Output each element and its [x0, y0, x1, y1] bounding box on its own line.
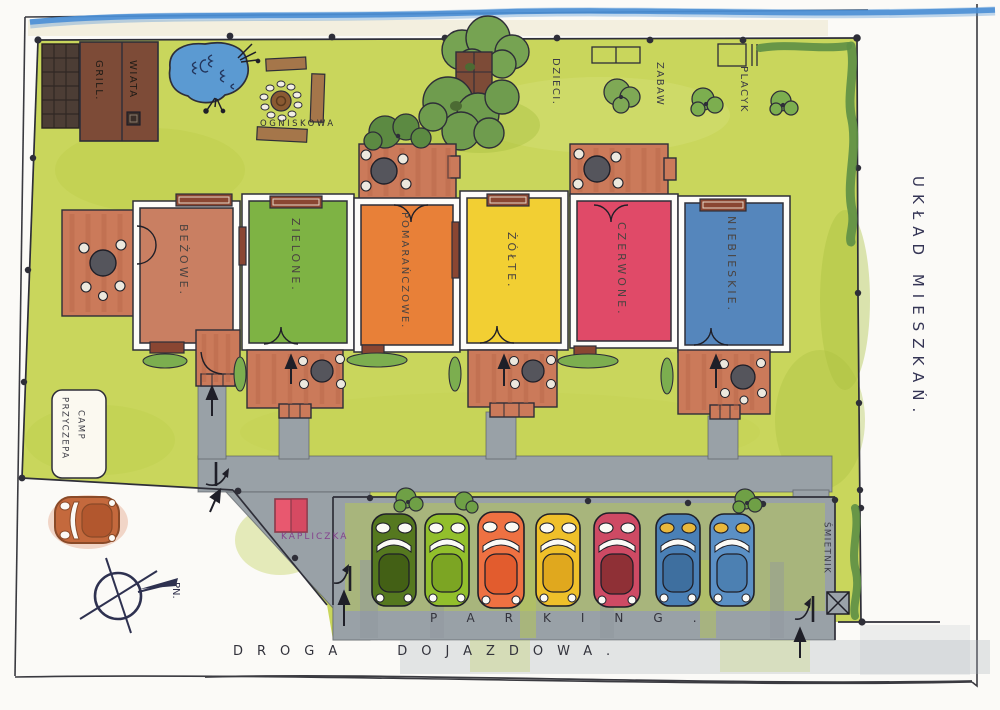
playground-label-placyk: PLACYK [738, 66, 748, 142]
house-label-czerwone: CZERWONE. [616, 222, 627, 340]
house-label-niebieskie: NIEBIESKIE. [726, 216, 737, 346]
camp-label-line2: CAMP [76, 410, 85, 460]
car-dark-green [372, 514, 416, 606]
playground-label-dzieci: DZIECI. [550, 58, 560, 136]
car-yellow [536, 514, 580, 606]
street-car [48, 495, 128, 549]
top-margin-wash [28, 20, 828, 36]
trash-bin [827, 592, 849, 614]
ogniskowa-label: OGNISKOWA [260, 120, 336, 129]
map-title: UKŁAD MIESZKAŃ. [910, 176, 925, 461]
house-label-zolte: ŻÓŁTE. [506, 232, 517, 332]
site-plan-map: GRILL. WIATA OGNISKOWA DZIECI. ZABAW PLA… [0, 0, 1000, 710]
playground-label-zabaw: ZABAW [654, 62, 664, 128]
parking-label: PARKING. [430, 612, 727, 624]
car-light-green [425, 514, 469, 606]
map-drawing [0, 0, 1000, 710]
camp-label-line1: PRZYCZEPA [60, 397, 69, 475]
grill-label: GRILL. [93, 60, 103, 145]
road-label-word2: DOJAZDOWA. [397, 644, 624, 659]
house-label-bezowe: BEŻOWE. [178, 224, 189, 334]
car-blue-1 [656, 514, 700, 606]
house-label-zielone: ZIELONE. [290, 218, 301, 338]
road-label: DROGADOJAZDOWA. [233, 645, 624, 658]
wiata-label: WIATA [127, 60, 137, 132]
compass-north-label: PN. [170, 582, 180, 616]
parked-cars [372, 512, 754, 608]
kapliczka-label: KAPLICZKA [281, 533, 348, 542]
house-label-pomaranczowe: POMARAŃCZOWE. [399, 212, 409, 344]
road-label-word1: DROGA [233, 644, 351, 659]
car-red [594, 513, 640, 607]
grill-shelter [80, 42, 158, 141]
compass-rose [80, 558, 178, 633]
kapliczka-shrine [275, 499, 307, 532]
houses [133, 191, 790, 352]
smietnik-label: ŚMIETNIK [822, 522, 831, 592]
car-blue-2 [710, 514, 754, 606]
car-orange [478, 512, 524, 608]
